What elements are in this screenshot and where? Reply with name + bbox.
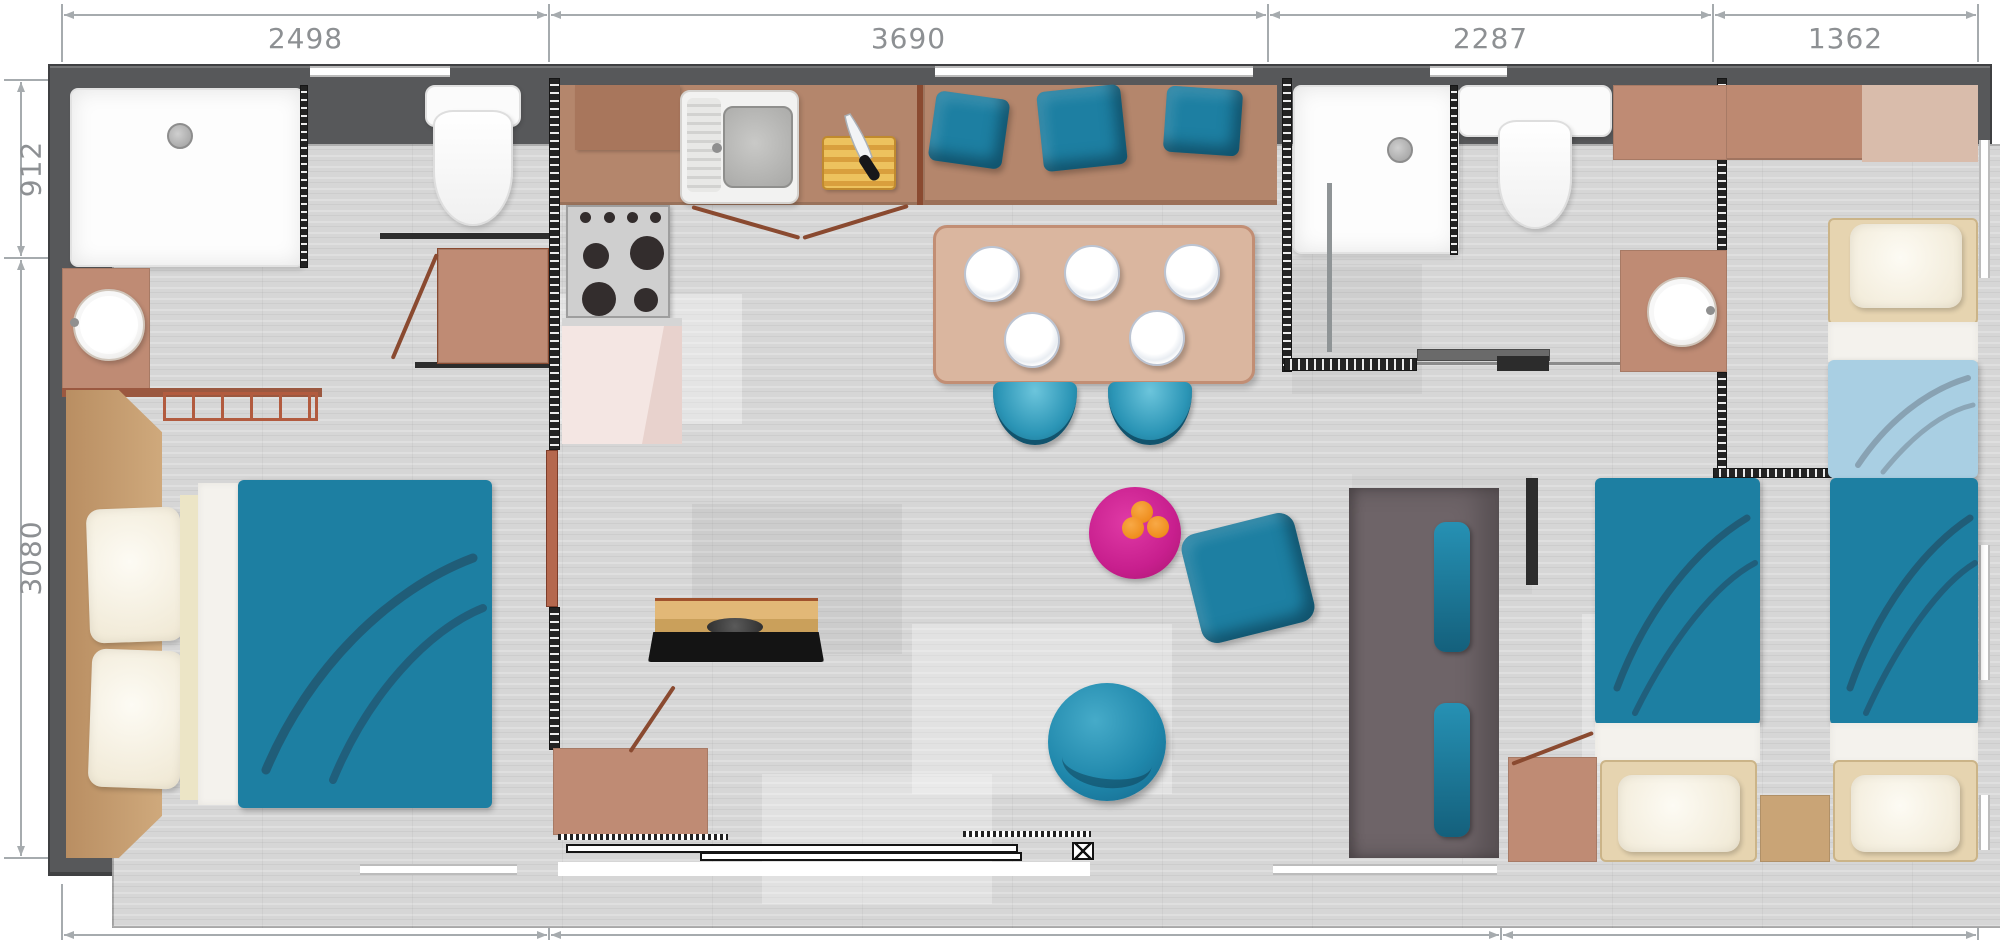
window xyxy=(360,864,517,875)
storage-cabinet xyxy=(553,748,708,835)
plate xyxy=(964,246,1020,302)
bed-sheet xyxy=(1828,322,1978,362)
plate xyxy=(1064,245,1120,301)
fridge xyxy=(562,326,682,444)
bay-opening xyxy=(558,862,1090,876)
storage-unit xyxy=(1349,488,1499,858)
duvet-pattern xyxy=(1595,478,1760,725)
plate xyxy=(1129,310,1185,366)
burner-icon xyxy=(634,288,658,312)
partition-wall xyxy=(549,607,560,750)
floor-patch xyxy=(762,774,992,904)
shower-screen-wall xyxy=(1450,85,1458,255)
dimension-value: 3690 xyxy=(549,22,1268,55)
nightstand xyxy=(1760,795,1830,862)
knife-icon xyxy=(836,112,900,184)
cushion-bolster xyxy=(1434,703,1470,837)
partition-wall xyxy=(549,78,560,450)
dimension-value: 3080 xyxy=(15,520,48,595)
extension-line xyxy=(548,4,550,62)
extension-line xyxy=(4,79,48,81)
wall-segment xyxy=(1497,356,1549,371)
sliding-door-panel xyxy=(700,852,1022,861)
extension-line xyxy=(1712,4,1714,62)
single-bed-duvet xyxy=(1595,478,1760,725)
window xyxy=(1979,140,1990,278)
shower-screen-wall xyxy=(300,85,308,268)
shower-drain-icon xyxy=(1387,137,1413,163)
dimension-value: 2287 xyxy=(1268,22,1713,55)
bed-sheet xyxy=(198,483,240,805)
window xyxy=(1430,66,1507,77)
double-bed-duvet xyxy=(238,480,492,808)
door-leaf xyxy=(546,450,558,607)
extension-line xyxy=(61,884,63,940)
floor-plan: 2498 3690 2287 1362 2498 4888 2470 912 3… xyxy=(0,0,2000,948)
dimension-line xyxy=(64,14,547,16)
orange-icon xyxy=(1122,517,1144,539)
bedside-cabinet xyxy=(1508,757,1597,862)
duvet-pattern xyxy=(1828,360,1978,478)
plate xyxy=(1004,312,1060,368)
round-sink xyxy=(73,289,145,361)
stove-knob-icon xyxy=(650,212,661,223)
window xyxy=(935,66,1253,77)
sink-bowl xyxy=(723,106,793,188)
extension-line xyxy=(4,257,48,259)
fridge-door-shade xyxy=(642,326,682,444)
plate xyxy=(1164,244,1220,300)
dimension-value: 1362 xyxy=(1713,22,1978,55)
faucet-icon xyxy=(1706,306,1715,315)
partition-wall xyxy=(1717,372,1727,478)
burner-icon xyxy=(583,243,609,269)
cushion-bolster xyxy=(1434,522,1470,652)
dimension-line xyxy=(1503,934,1976,936)
pillow xyxy=(1618,775,1740,852)
burner-icon xyxy=(582,282,616,316)
dimension-line xyxy=(1270,14,1711,16)
tv xyxy=(648,632,824,662)
pouf-fold xyxy=(1059,730,1154,792)
stove-knob-icon xyxy=(580,212,591,223)
dimension-line xyxy=(1715,14,1976,16)
duvet-pattern xyxy=(1830,478,1978,725)
wall-segment xyxy=(1526,478,1538,585)
overhead-shelf xyxy=(1862,85,1978,162)
dimension-line xyxy=(64,934,547,936)
radiator-bench xyxy=(163,392,318,421)
toilet-bowl xyxy=(433,110,513,226)
extension-line xyxy=(61,4,63,62)
dimension-top-1: 2498 xyxy=(62,8,549,58)
dimension-value: 912 xyxy=(15,141,48,197)
toilet-bowl xyxy=(1498,120,1572,229)
bed-sheet xyxy=(1830,723,1978,763)
wardrobe-shelf-edge xyxy=(380,233,549,239)
wardrobe xyxy=(437,248,549,364)
burner-icon xyxy=(630,236,664,270)
dimension-top-3: 2287 xyxy=(1268,8,1713,58)
round-pouf xyxy=(1048,683,1166,801)
floor-patch xyxy=(1292,264,1422,394)
shower-door-rail xyxy=(1327,183,1332,352)
window xyxy=(310,66,450,77)
orange-icon xyxy=(1147,516,1169,538)
shower-tray xyxy=(1293,85,1459,254)
window xyxy=(1979,795,1990,850)
bathroom-shelf xyxy=(1613,85,1727,160)
faucet-icon xyxy=(712,143,722,153)
seat-cushion xyxy=(927,90,1010,170)
seat-cushion xyxy=(1036,84,1128,172)
window xyxy=(1979,545,1990,680)
dimension-top-2: 3690 xyxy=(549,8,1268,58)
partition-wall xyxy=(1713,468,1832,478)
single-bed-duvet xyxy=(1828,360,1978,478)
door-stop-box xyxy=(1072,842,1094,860)
overhead-shelf xyxy=(1727,85,1862,160)
dimension-line xyxy=(551,934,1499,936)
pillow xyxy=(88,648,185,789)
dimension-line xyxy=(551,14,1266,16)
extension-line xyxy=(1267,4,1269,62)
partition-wall xyxy=(1284,358,1417,371)
partition-wall xyxy=(1282,78,1292,372)
kitchen-cabinet xyxy=(575,85,680,150)
single-bed-duvet xyxy=(1830,478,1978,725)
seat-cushion xyxy=(1163,85,1243,156)
window xyxy=(1273,864,1497,875)
bed-sheet xyxy=(1595,723,1760,763)
stove-knob-icon xyxy=(627,212,638,223)
dimension-top-4: 1362 xyxy=(1713,8,1978,58)
shower-drain-icon xyxy=(167,123,193,149)
pillow xyxy=(1851,775,1960,852)
pillow xyxy=(1850,224,1962,308)
faucet-icon xyxy=(70,318,79,327)
duvet-pattern xyxy=(238,480,492,808)
cabinet-top-edge xyxy=(562,318,682,326)
door-track-hatch xyxy=(963,831,1091,837)
pillow xyxy=(86,506,185,643)
door-track-hatch xyxy=(558,834,728,840)
extension-line xyxy=(1977,4,1979,62)
dimension-value: 2498 xyxy=(62,22,549,55)
shower-tray xyxy=(70,88,304,267)
extension-line xyxy=(4,857,48,859)
stove-knob-icon xyxy=(604,212,615,223)
